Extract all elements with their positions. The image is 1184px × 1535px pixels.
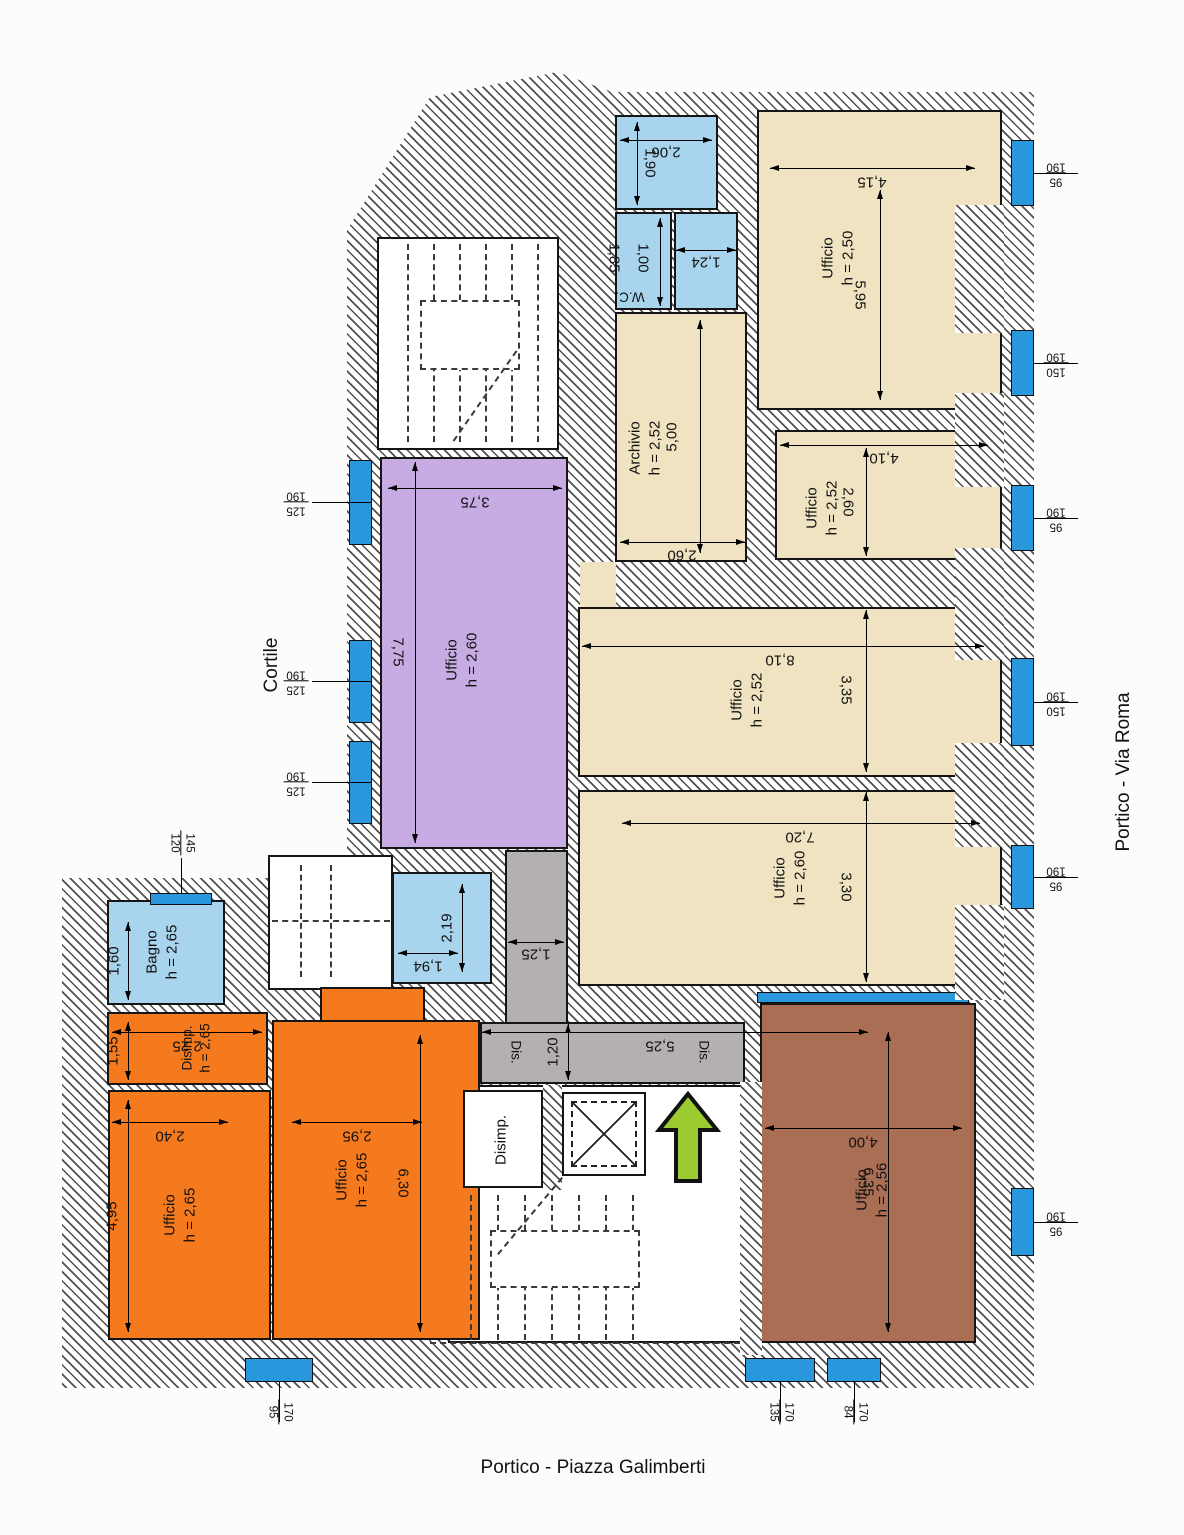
dim-label: 4,10 — [869, 450, 898, 467]
dim-label: 4,95 — [104, 1201, 121, 1230]
room-label-archivio: Archivioh = 2,52 — [626, 421, 665, 476]
wall-patch-lobby-right — [740, 1082, 762, 1355]
stair-tread — [470, 1195, 472, 1340]
glazing-strip-brown-room — [757, 992, 969, 1003]
pilaster-right-1 — [955, 205, 1004, 333]
dim-label: 1,90 — [642, 148, 659, 177]
room-label-ufficio-260-purple: Ufficioh = 2,60 — [443, 633, 482, 688]
window-size-label: 150190 — [1043, 349, 1068, 378]
window-leader — [312, 502, 372, 503]
dim-label: 1,55 — [105, 1036, 122, 1065]
dim-label: 3,35 — [838, 675, 855, 704]
dim-line — [660, 218, 661, 306]
window-bottom-1 — [245, 1358, 313, 1382]
room-label-ufficio-260-beige: Ufficioh = 2,60 — [771, 851, 810, 906]
dim-line — [292, 1122, 422, 1123]
window-size-label: 125190 — [283, 768, 308, 797]
dim-line — [765, 1128, 962, 1129]
dim-label: 5,25 — [645, 1038, 674, 1055]
pilaster-right-4 — [955, 743, 1004, 847]
window-size-label: 17095 — [265, 1399, 294, 1424]
dim-line — [415, 462, 416, 843]
stair-tread — [272, 920, 390, 922]
window-leader — [181, 858, 182, 893]
window-size-label: 95190 — [1046, 863, 1065, 892]
dim-line — [462, 884, 463, 972]
dim-label: 1,25 — [521, 946, 550, 963]
dim-label: 2,95 — [342, 1128, 371, 1145]
window-size-label: 95190 — [1046, 159, 1065, 188]
window-size-label: 95190 — [1046, 1208, 1065, 1237]
room-label-bagno: Bagnoh = 2,65 — [143, 925, 182, 980]
dim-line — [420, 1035, 421, 1332]
dim-label: 1,20 — [545, 1037, 562, 1066]
dim-label: 7,20 — [785, 829, 814, 846]
dim-line — [128, 922, 129, 1000]
room-label-ufficio-256-brown: Ufficioh = 2,56 — [853, 1163, 892, 1218]
dim-line — [128, 1100, 129, 1332]
window-right-4 — [1011, 658, 1034, 746]
dim-label: 2,40 — [155, 1128, 184, 1145]
dim-label: 8,10 — [765, 652, 794, 669]
label-portico-piazza-galimberti: Portico - Piazza Galimberti — [481, 1457, 706, 1479]
dim-line — [866, 610, 867, 772]
stair-tread — [407, 244, 409, 442]
dim-line — [398, 953, 458, 954]
dim-label: 3,30 — [838, 872, 855, 901]
window-size-label: 125190 — [283, 667, 308, 696]
window-size-label: 170135 — [766, 1399, 795, 1424]
window-bottom-2 — [745, 1358, 815, 1382]
dim-line — [780, 445, 988, 446]
elevator-shaft — [562, 1092, 646, 1176]
window-size-label: 17084 — [840, 1399, 869, 1424]
room-ufficio-265-right — [272, 1020, 480, 1340]
dim-label: 6,30 — [395, 1168, 412, 1197]
dim-line — [128, 1022, 129, 1080]
stair-landing-lower — [490, 1230, 640, 1288]
room-ufficio-265-right-bump — [320, 987, 425, 1024]
dim-line — [620, 542, 745, 543]
dim-line — [482, 1032, 868, 1033]
window-right-2 — [1011, 330, 1034, 396]
room-label-ufficio-265-left: Ufficioh = 2,65 — [161, 1188, 200, 1243]
dim-line — [637, 122, 638, 205]
corridor-label-dis-right: Dis. — [697, 1040, 712, 1063]
dim-line — [880, 190, 881, 400]
dim-line — [676, 250, 736, 251]
window-right-1 — [1011, 140, 1034, 206]
dim-label: 1,00 — [635, 243, 652, 272]
stair-landing — [420, 300, 520, 370]
window-size-label: 95190 — [1046, 504, 1065, 533]
label-cortile: Cortile — [261, 638, 283, 693]
dim-label: 1,24 — [691, 254, 720, 271]
dim-label: 4,00 — [848, 1134, 877, 1151]
dim-label: 2,60 — [667, 547, 696, 564]
room-label-ufficio-252-small: Ufficioh = 2,52 — [803, 481, 842, 536]
elevator-cab-x — [571, 1101, 637, 1167]
dim-line — [700, 320, 701, 553]
corridor-label-dis-left: Dis. — [509, 1040, 524, 1063]
room-ufficio-252-large-jog — [580, 562, 616, 612]
room-label-ufficio-250: Ufficioh = 2,50 — [819, 231, 858, 286]
stair-tread — [537, 244, 539, 442]
room-label-ufficio-252-large: Ufficioh = 2,52 — [728, 673, 767, 728]
dim-line — [620, 140, 712, 141]
dim-line — [582, 646, 984, 647]
dim-label: 7,75 — [390, 637, 407, 666]
pilaster-right-5 — [955, 905, 1004, 1000]
dim-label: 2,60 — [840, 487, 857, 516]
window-bagno — [150, 893, 212, 905]
label-portico-via-roma: Portico - Via Roma — [1113, 692, 1135, 851]
dim-label: 5,00 — [664, 422, 681, 451]
dim-label: 4,15 — [857, 174, 886, 191]
dim-line — [622, 823, 980, 824]
dim-line — [866, 792, 867, 982]
portico-edge-dashed — [430, 1342, 740, 1344]
dim-label: 3,75 — [460, 494, 489, 511]
window-bottom-3 — [827, 1358, 881, 1382]
dim-line — [112, 1122, 228, 1123]
entrance-arrow-icon — [655, 1090, 721, 1185]
window-right-3 — [1011, 485, 1034, 551]
room-ufficio-252-large — [578, 607, 1002, 777]
dim-label: 1,85 — [606, 243, 623, 272]
window-right-6 — [1011, 1188, 1034, 1256]
dim-line — [508, 942, 564, 943]
room-label-disimp-white: Disimp. — [493, 1115, 510, 1165]
room-label-wc: W.C. — [615, 290, 644, 305]
dim-line — [866, 448, 867, 556]
corridor-vertical — [505, 850, 568, 1024]
wall-patch-lobby-left — [543, 1085, 562, 1190]
pilaster-right-2 — [955, 393, 1004, 487]
floor-plan-canvas: 125190 125190 125190 145120 95190 150190… — [0, 0, 1184, 1535]
room-service-blue-top — [615, 115, 718, 210]
room-label-disimp-orange: Disimp.h = 2,65 — [178, 1023, 213, 1072]
dim-label: 1,60 — [106, 946, 123, 975]
room-label-ufficio-265-right: Ufficioh = 2,65 — [333, 1153, 372, 1208]
dim-line — [770, 168, 975, 169]
window-right-5 — [1011, 845, 1034, 909]
dim-label: 1,94 — [413, 958, 442, 975]
window-size-label: 150190 — [1043, 688, 1068, 717]
window-size-label: 145120 — [167, 830, 196, 855]
window-leader — [312, 782, 372, 783]
dim-label: 2,19 — [439, 913, 456, 942]
window-size-label: 125190 — [283, 488, 308, 517]
window-leader — [312, 681, 372, 682]
